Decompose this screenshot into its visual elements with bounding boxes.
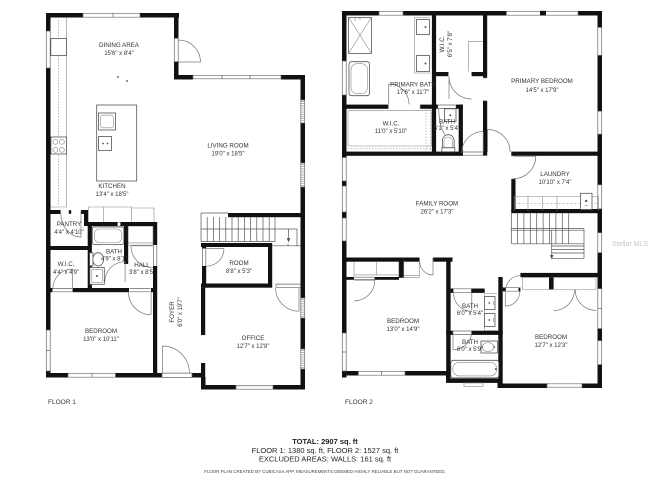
svg-text:4'9" x 8'1": 4'9" x 8'1" xyxy=(101,257,127,263)
svg-text:17'6" x 11'7": 17'6" x 11'7" xyxy=(397,90,429,96)
svg-text:PRIMARY BEDROOM: PRIMARY BEDROOM xyxy=(511,78,573,85)
svg-text:ROOM: ROOM xyxy=(229,260,248,267)
svg-text:6'0" x 5'9": 6'0" x 5'9" xyxy=(457,347,483,353)
svg-text:DINING AREA: DINING AREA xyxy=(99,42,140,49)
svg-text:PRIMARY BATH: PRIMARY BATH xyxy=(390,82,436,89)
svg-text:10'10" x 7'4": 10'10" x 7'4" xyxy=(539,180,572,186)
svg-text:BATH: BATH xyxy=(462,303,478,310)
svg-text:FOYER: FOYER xyxy=(169,301,176,323)
svg-text:BEDROOM: BEDROOM xyxy=(85,328,117,335)
svg-text:BEDROOM: BEDROOM xyxy=(535,334,567,341)
svg-text:LAUNDRY: LAUNDRY xyxy=(540,171,569,178)
svg-text:FLOOR PLAN CREATED BY CUBICASA: FLOOR PLAN CREATED BY CUBICASA APP. MEAS… xyxy=(204,469,445,474)
svg-text:15'6" x 8'4": 15'6" x 8'4" xyxy=(104,51,134,57)
svg-text:12'7" x 12'3": 12'7" x 12'3" xyxy=(535,343,568,349)
svg-text:LIVING ROOM: LIVING ROOM xyxy=(207,143,248,150)
svg-text:5'1" x 5'4": 5'1" x 5'4" xyxy=(434,126,460,132)
svg-text:6'0" x 19'7": 6'0" x 19'7" xyxy=(178,297,184,327)
svg-text:8'8" x 5'3": 8'8" x 5'3" xyxy=(226,269,252,275)
svg-text:BATH: BATH xyxy=(106,249,122,256)
svg-text:FLOOR 2: FLOOR 2 xyxy=(345,399,373,406)
svg-text:BEDROOM: BEDROOM xyxy=(387,318,419,325)
svg-text:W.I.C.: W.I.C. xyxy=(58,261,75,268)
svg-text:Stellar MLS: Stellar MLS xyxy=(612,241,649,248)
svg-text:W.I.C.: W.I.C. xyxy=(439,35,446,52)
svg-text:14'5" x 17'9": 14'5" x 17'9" xyxy=(526,88,559,94)
svg-text:OFFICE: OFFICE xyxy=(242,335,265,342)
svg-text:EXCLUDED AREAS: WALLS: 161 sq.: EXCLUDED AREAS: WALLS: 161 sq. ft xyxy=(259,455,392,464)
svg-text:BATH: BATH xyxy=(439,119,455,126)
svg-text:FLOOR 1: FLOOR 1 xyxy=(48,399,76,406)
svg-text:11'0" x 5'10": 11'0" x 5'10" xyxy=(375,129,407,135)
svg-text:12'7" x 12'8": 12'7" x 12'8" xyxy=(237,344,270,350)
svg-text:13'0" x 10'11": 13'0" x 10'11" xyxy=(83,337,119,343)
svg-text:26'2" x 17'3": 26'2" x 17'3" xyxy=(421,210,454,216)
svg-text:4'4" x 4'9": 4'4" x 4'9" xyxy=(53,270,79,276)
svg-text:PANTRY: PANTRY xyxy=(57,221,82,228)
svg-text:6'5" x 7'8": 6'5" x 7'8" xyxy=(448,31,454,57)
svg-text:FAMILY ROOM: FAMILY ROOM xyxy=(416,201,458,208)
svg-text:TOTAL: 2907 sq. ft: TOTAL: 2907 sq. ft xyxy=(292,437,358,446)
svg-text:6'0" x 5'4": 6'0" x 5'4" xyxy=(457,311,483,317)
svg-text:4'4" x 4'10": 4'4" x 4'10" xyxy=(54,230,84,236)
svg-text:19'0" x 18'5": 19'0" x 18'5" xyxy=(212,152,245,158)
svg-text:BATH: BATH xyxy=(462,339,478,346)
svg-text:KITCHEN: KITCHEN xyxy=(98,183,125,190)
svg-text:HALL: HALL xyxy=(134,262,150,269)
svg-text:13'0" x 14'9": 13'0" x 14'9" xyxy=(387,327,420,333)
svg-text:3'8" x 8'5": 3'8" x 8'5" xyxy=(129,270,155,276)
svg-text:W.I.C.: W.I.C. xyxy=(383,121,400,128)
svg-text:13'4" x 18'5": 13'4" x 18'5" xyxy=(96,192,129,198)
